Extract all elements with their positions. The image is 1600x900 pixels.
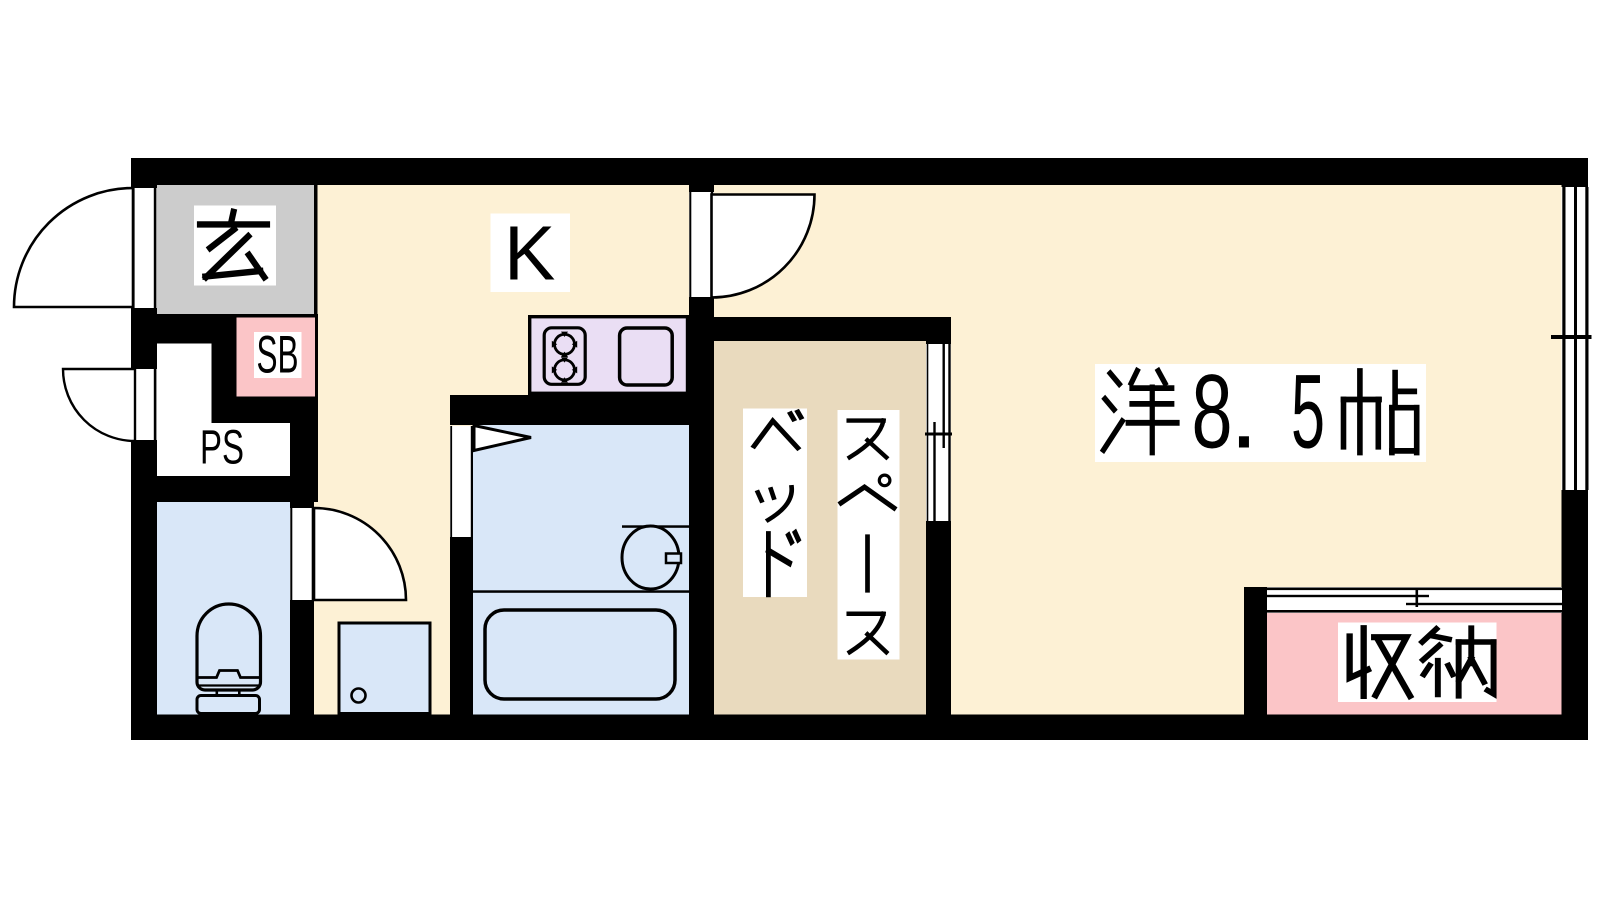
svg-text:PS: PS [200,422,244,475]
svg-text:K: K [504,211,555,297]
svg-text:SB: SB [257,326,299,385]
svg-text:5: 5 [1291,354,1325,471]
svg-text:8: 8 [1192,354,1233,471]
svg-text:.: . [1229,354,1258,471]
